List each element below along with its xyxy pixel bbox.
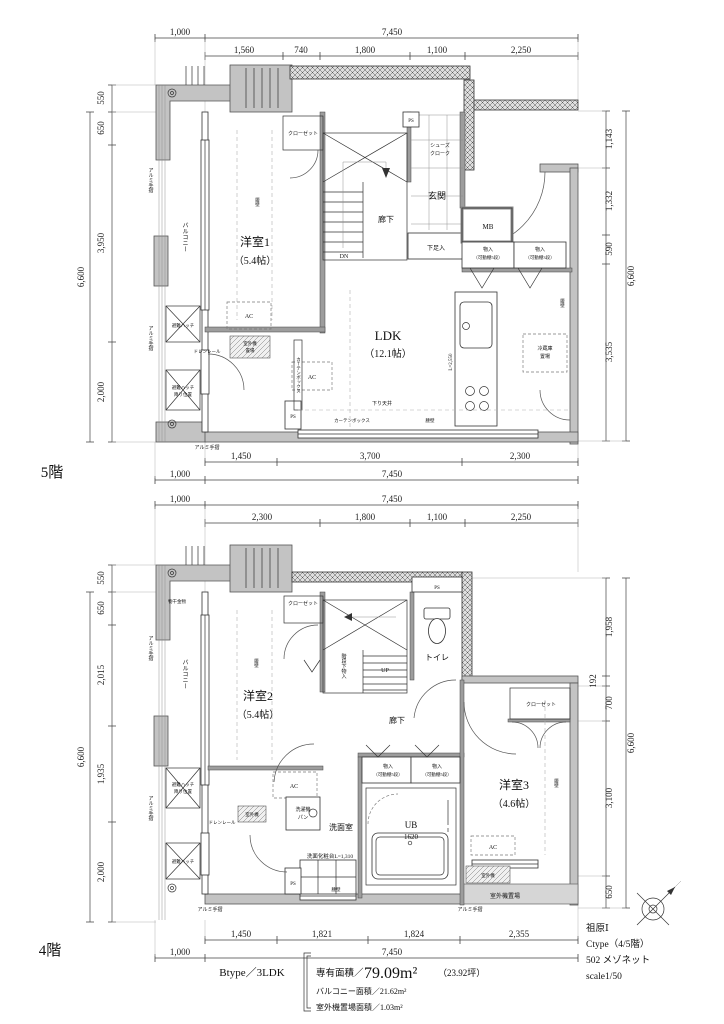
dim-label: 1,958 bbox=[604, 616, 614, 637]
shoes-closet-label: シューズ bbox=[430, 142, 450, 149]
dim-label: 1,935 bbox=[96, 763, 106, 784]
corridor-label: 廊下 bbox=[378, 214, 394, 224]
shoes-closet-label: クローク bbox=[430, 151, 450, 157]
balcony-label: バルコニー bbox=[181, 659, 188, 689]
outer-wall bbox=[570, 168, 578, 444]
dim-label: 1,100 bbox=[427, 45, 448, 55]
dim-label: 7,450 bbox=[382, 947, 403, 957]
floor5: 1,000 7,450 1,560 740 1,800 1,100 2,250 … bbox=[41, 27, 636, 484]
ub-size: 1620 bbox=[404, 833, 419, 841]
floor4: 1,000 7,450 2,300 1,800 1,100 2,250 550 … bbox=[39, 494, 636, 962]
utility-shaft bbox=[230, 545, 292, 592]
floor5-dim-right: 1,143 1,332 590 3,535 6,600 bbox=[578, 111, 636, 441]
hatch-label: 降り位置 bbox=[174, 391, 192, 398]
north-compass-icon bbox=[637, 881, 681, 925]
dim-label: 3,700 bbox=[360, 451, 381, 461]
rail-label: アルミ手摺 bbox=[458, 906, 483, 913]
toilet-label: トイレ bbox=[425, 653, 449, 662]
dim-label: 550 bbox=[96, 91, 106, 105]
plan-type: Ctype（4/5階） bbox=[586, 938, 649, 950]
closet-label: クローゼット bbox=[288, 600, 318, 607]
ub-label: UB bbox=[405, 820, 418, 830]
room3-size: （4.6帖） bbox=[493, 797, 536, 810]
storage-box bbox=[362, 757, 411, 783]
ac-label: AC bbox=[290, 784, 298, 790]
dim-label: 192 bbox=[588, 674, 598, 688]
floor5-title: 5階 bbox=[41, 464, 64, 481]
dim-label: 2,000 bbox=[96, 381, 106, 402]
monohoshi-label: 物干金物 bbox=[168, 598, 186, 605]
dim-label: 2,300 bbox=[252, 512, 273, 522]
drain-rail-label: ドレンレール bbox=[209, 820, 236, 825]
area-label: 専有面積／ bbox=[316, 967, 364, 979]
floor5-dim-left: 550 650 3,950 2,000 6,600 bbox=[76, 85, 156, 442]
koshikabe-label: 腰壁 bbox=[560, 298, 566, 308]
dim-label: 1,000 bbox=[170, 469, 191, 479]
storage-label: 物入 bbox=[535, 246, 545, 253]
floor4-dim-left: 550 650 2,015 1,935 2,000 6,600 bbox=[76, 565, 156, 922]
ps-label: PS bbox=[434, 586, 440, 591]
ac-label: AC bbox=[308, 375, 316, 381]
dim-label: 1,800 bbox=[355, 45, 376, 55]
floor4-dim-right: 1,958 192 700 3,100 650 6,600 bbox=[472, 578, 636, 908]
dim-label: 7,450 bbox=[382, 469, 403, 479]
outdoor-label: 室外機 bbox=[245, 811, 259, 818]
washer-label: パン bbox=[298, 815, 308, 821]
vanity bbox=[300, 860, 356, 894]
folding-door bbox=[304, 660, 320, 672]
balcony-door bbox=[201, 833, 209, 875]
area-tsubo: （23.92坪） bbox=[438, 968, 485, 978]
drain-rail-label: ドレンレール bbox=[194, 349, 221, 354]
ps-label: PS bbox=[290, 415, 296, 420]
ps-label: PS bbox=[290, 882, 296, 887]
floorplan-canvas: 1,000 7,450 1,560 740 1,800 1,100 2,250 … bbox=[0, 0, 724, 1024]
unit-type-label: Btype／3LDK bbox=[219, 966, 284, 979]
fridge-label: 置場 bbox=[540, 353, 550, 360]
closet-label: クローゼット bbox=[526, 701, 556, 708]
dim-label: 3,950 bbox=[96, 232, 106, 253]
kitchen-counter bbox=[455, 292, 497, 426]
outdoor-label: 置場 bbox=[246, 347, 255, 354]
closet-label: クローゼット bbox=[288, 130, 318, 137]
ac-label: AC bbox=[245, 314, 253, 320]
storage-label: 物入 bbox=[483, 246, 493, 253]
storage-sub: （可動棚3段） bbox=[525, 254, 554, 261]
storage-sub: （可動棚5段） bbox=[473, 254, 502, 261]
floor4-plan: バルコニー 物干金物 アルミ手摺 アルミ手摺 アルミ手摺 アルミ手摺 避難ハッチ… bbox=[148, 545, 579, 920]
balcony-door-arc bbox=[250, 835, 287, 872]
dim-label: 3,100 bbox=[604, 787, 614, 808]
dim-label: 1,821 bbox=[312, 929, 332, 939]
washer-label: 洗濯機 bbox=[295, 806, 310, 813]
curtain-label: カーテンボックス bbox=[334, 417, 370, 424]
curtain-label: カーテンボックス bbox=[296, 357, 302, 394]
dim-label: 1,560 bbox=[234, 45, 255, 55]
dim-label: 1,450 bbox=[231, 929, 252, 939]
dn-label: DN bbox=[340, 254, 349, 260]
rail-label: アルミ手摺 bbox=[148, 168, 154, 194]
dim-label: 1,000 bbox=[170, 27, 191, 37]
hatch-label: 避難ハッチ bbox=[172, 322, 195, 329]
dim-label: 1,000 bbox=[170, 947, 191, 957]
stairs-down bbox=[323, 133, 407, 260]
outdoor-label: 室外機 bbox=[243, 340, 257, 347]
toilet bbox=[412, 577, 462, 718]
outdoor-place-label: 室外機置場 bbox=[490, 892, 520, 900]
dim-label: 2,250 bbox=[511, 45, 532, 55]
ldk-size: （12.1帖） bbox=[364, 347, 412, 360]
corridor-label: 廊下 bbox=[389, 715, 405, 725]
balcony-wall bbox=[156, 85, 236, 160]
floor4-dim-bottom: 1,450 1,821 1,824 2,355 1,000 7,450 bbox=[155, 905, 578, 962]
dim-label: 7,450 bbox=[382, 494, 403, 504]
dim-label: 650 bbox=[96, 121, 106, 135]
floor5-plan: バルコニー アルミ手摺 アルミ手摺 アルミ手摺 避難ハッチ 避難ハッチ 降り位置… bbox=[148, 65, 579, 451]
room3-door-arc bbox=[464, 702, 516, 754]
storage-box bbox=[411, 757, 460, 783]
dim-label: 2,000 bbox=[96, 861, 106, 882]
dim-label: 650 bbox=[604, 885, 614, 899]
dim-label: 2,300 bbox=[510, 451, 531, 461]
stair-storage-label: 階段下物入 bbox=[341, 653, 347, 679]
balcony-label: バルコニー bbox=[181, 222, 188, 252]
party-wall-hatch bbox=[462, 572, 472, 680]
project-name: 祖原Ⅰ bbox=[586, 922, 609, 934]
ceiling-label: 下り天井 bbox=[372, 400, 392, 407]
title-block: 祖原Ⅰ Ctype（4/5階） 502 メゾネット scale1/50 bbox=[586, 881, 681, 982]
storage-label: 物入 bbox=[383, 763, 393, 770]
area-value: 79.09m² bbox=[364, 965, 417, 982]
koshikabe-label: 腰壁 bbox=[332, 886, 341, 893]
rail-label: アルミ手摺 bbox=[195, 444, 220, 451]
outer-wall bbox=[570, 683, 578, 905]
washroom-label: 洗面室 bbox=[329, 822, 353, 832]
koshikabe-label: 腰壁 bbox=[255, 197, 261, 207]
entrance-label: 玄関 bbox=[428, 190, 446, 201]
koshikabe-label: 腰壁 bbox=[426, 417, 435, 424]
outdoor-unit-space bbox=[230, 336, 270, 358]
balcony-door bbox=[201, 350, 209, 394]
ldk-label: LDK bbox=[375, 328, 402, 343]
dim-label: 1,000 bbox=[170, 494, 191, 504]
dim-label: 2,355 bbox=[509, 929, 530, 939]
fridge-space bbox=[523, 334, 567, 372]
drain-cap bbox=[168, 884, 176, 892]
room1-size: （5.4帖） bbox=[234, 254, 277, 267]
party-wall-hatch bbox=[464, 80, 474, 170]
vanity-label: 洗面化粧台L=1,310 bbox=[307, 852, 354, 860]
storage-sub: （可動棚5段） bbox=[422, 771, 451, 778]
hatch-label: 降り位置 bbox=[174, 788, 192, 795]
ac-label: AC bbox=[489, 845, 497, 851]
dim-label: 6,600 bbox=[626, 265, 636, 286]
storage-sub: （可動棚5段） bbox=[373, 771, 402, 778]
dim-label: 3,535 bbox=[604, 341, 614, 362]
koshikabe-label: 腰壁 bbox=[554, 778, 560, 788]
floor4-title: 4階 bbox=[39, 942, 62, 959]
koshikabe-label: 腰壁 bbox=[254, 658, 260, 668]
storage-label: 物入 bbox=[432, 763, 442, 770]
scale-label: scale1/50 bbox=[586, 972, 622, 982]
dim-label: 7,450 bbox=[382, 27, 403, 37]
unit-number: 502 メゾネット bbox=[586, 955, 650, 966]
dim-label: 650 bbox=[96, 601, 106, 615]
footer: Btype／3LDK 専有面積／ 79.09m² （23.92坪） バルコニー面… bbox=[219, 953, 485, 1012]
balcony-door-arc bbox=[208, 354, 244, 390]
balcony-area-label: バルコニー面積／21.62m² bbox=[316, 986, 407, 996]
dim-label: 550 bbox=[96, 571, 106, 585]
room2-label: 洋室2 bbox=[243, 688, 273, 703]
mb-label: MB bbox=[483, 223, 494, 231]
outdoor-area-label: 室外機置場面積／1.03m² bbox=[316, 1002, 403, 1012]
dim-label: 1,143 bbox=[604, 128, 614, 149]
outdoor-label: 室外機 bbox=[481, 872, 495, 879]
dim-label: 740 bbox=[294, 45, 308, 55]
footer-bracket bbox=[304, 953, 311, 1011]
pipe-space bbox=[285, 868, 301, 894]
washer-pan bbox=[286, 797, 320, 830]
dim-label: 6,600 bbox=[626, 732, 636, 753]
dim-label: 6,600 bbox=[76, 746, 86, 767]
dim-label: 1,100 bbox=[427, 512, 448, 522]
rail-label: アルミ手摺 bbox=[148, 326, 154, 352]
washroom-door-arc bbox=[274, 744, 314, 782]
dim-label: 1,800 bbox=[355, 512, 376, 522]
hatch-label: 避難ハッチ bbox=[172, 384, 195, 391]
rail-label: アルミ手摺 bbox=[148, 796, 154, 822]
dim-label: 1,332 bbox=[604, 191, 614, 211]
dim-label: 6,600 bbox=[76, 266, 86, 287]
stairs-up bbox=[304, 600, 407, 693]
counter-length-label: L=2,550 bbox=[449, 353, 454, 371]
shoe-cabinet-label: 下足入 bbox=[427, 245, 445, 252]
hatch-label: 避難ハッチ bbox=[172, 781, 195, 788]
dim-label: 590 bbox=[604, 242, 614, 256]
dim-label: 2,015 bbox=[96, 664, 106, 685]
room2-size: （5.4帖） bbox=[237, 708, 280, 721]
utility-shaft bbox=[230, 65, 292, 112]
fridge-label: 冷蔵庫 bbox=[537, 345, 552, 352]
ps-label: PS bbox=[408, 119, 414, 124]
rail-label: アルミ手摺 bbox=[148, 636, 154, 662]
floorplan-sheet: 1,000 7,450 1,560 740 1,800 1,100 2,250 … bbox=[0, 0, 724, 1024]
room3-label: 洋室3 bbox=[499, 777, 529, 792]
rail-label: アルミ手摺 bbox=[198, 906, 223, 913]
room1-label: 洋室1 bbox=[240, 234, 270, 249]
closet-box bbox=[284, 596, 323, 623]
dim-label: 1,450 bbox=[231, 451, 252, 461]
dim-label: 2,250 bbox=[511, 512, 532, 522]
dim-label: 1,824 bbox=[404, 929, 425, 939]
hatch-label: 避難ハッチ bbox=[172, 858, 195, 865]
party-wall-hatch bbox=[290, 66, 470, 79]
party-wall-hatch bbox=[470, 100, 578, 110]
dim-label: 700 bbox=[604, 696, 614, 710]
up-label: UP bbox=[381, 668, 389, 674]
